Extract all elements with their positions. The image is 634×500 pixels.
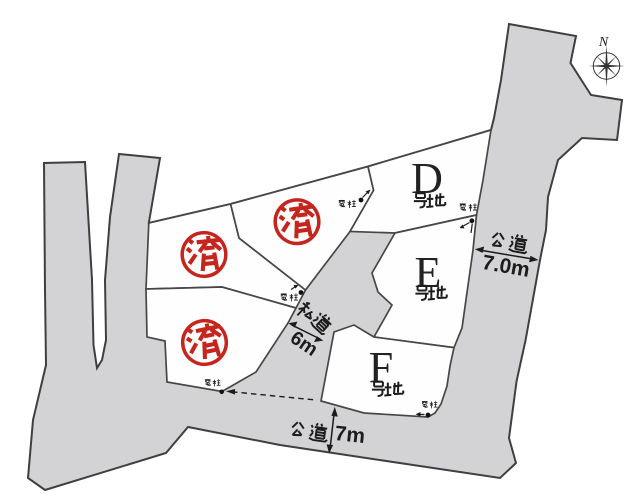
svg-text:N: N: [598, 35, 609, 50]
svg-text:F: F: [369, 343, 393, 392]
svg-text:7m: 7m: [334, 422, 367, 448]
